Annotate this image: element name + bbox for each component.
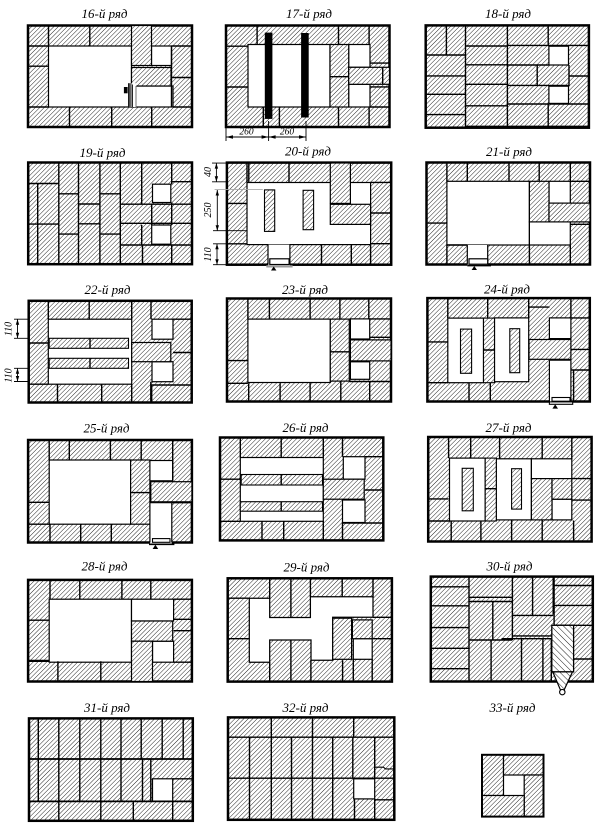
svg-text:110: 110 — [4, 322, 15, 336]
svg-text:21-й ряд: 21-й ряд — [486, 144, 532, 159]
svg-text:19-й ряд: 19-й ряд — [79, 145, 125, 160]
svg-text:28-й ряд: 28-й ряд — [81, 559, 127, 574]
svg-text:110: 110 — [4, 368, 15, 382]
svg-text:18-й ряд: 18-й ряд — [485, 6, 531, 21]
svg-text:33-й ряд: 33-й ряд — [488, 700, 535, 715]
svg-text:26-й ряд: 26-й ряд — [282, 420, 328, 435]
svg-text:24-й ряд: 24-й ряд — [484, 282, 530, 297]
svg-text:27-й ряд: 27-й ряд — [485, 420, 531, 435]
svg-text:40: 40 — [203, 167, 214, 177]
svg-text:260: 260 — [280, 128, 295, 138]
svg-text:260: 260 — [239, 128, 254, 138]
svg-text:16-й ряд: 16-й ряд — [81, 6, 127, 21]
svg-text:110: 110 — [203, 247, 214, 261]
svg-text:32-й ряд: 32-й ряд — [281, 700, 328, 715]
svg-text:17-й ряд: 17-й ряд — [286, 6, 332, 21]
svg-text:23-й ряд: 23-й ряд — [282, 282, 328, 297]
svg-text:30-й ряд: 30-й ряд — [485, 559, 532, 574]
svg-text:250: 250 — [203, 203, 214, 218]
svg-text:20-й ряд: 20-й ряд — [285, 144, 331, 159]
svg-text:22-й ряд: 22-й ряд — [84, 282, 130, 297]
svg-text:29-й ряд: 29-й ряд — [283, 560, 329, 575]
svg-text:25-й ряд: 25-й ряд — [83, 421, 129, 436]
svg-text:31-й ряд: 31-й ряд — [83, 700, 130, 715]
